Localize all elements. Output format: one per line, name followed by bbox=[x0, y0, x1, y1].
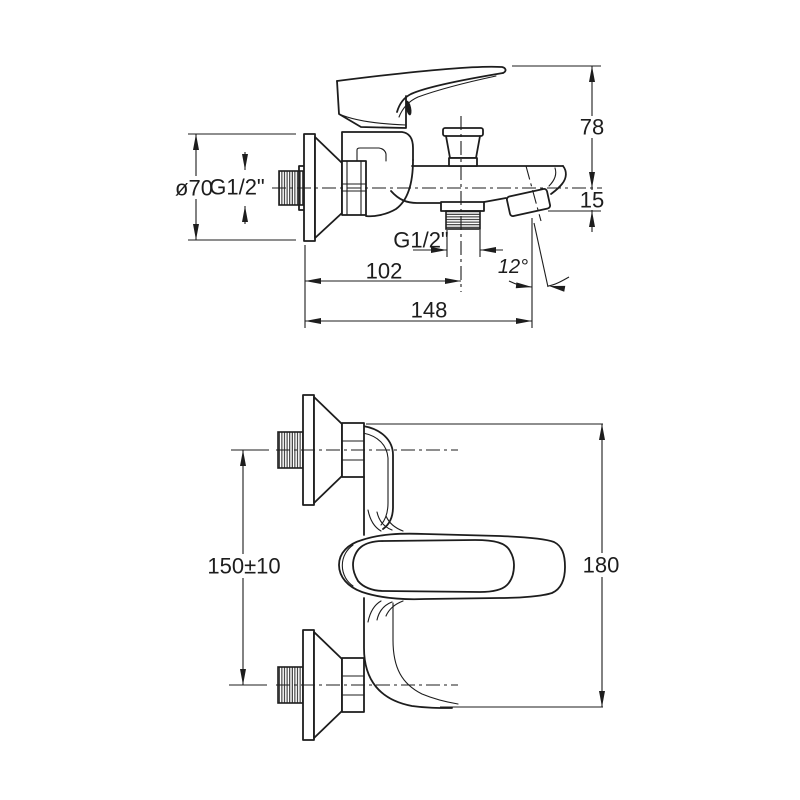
upper-neck-inner bbox=[363, 433, 388, 525]
ext-lines-outlet-thread bbox=[447, 230, 480, 257]
faucet-dimension-drawing: ø70 G1/2" 78 15 G1/2" 102 148 12° bbox=[0, 0, 800, 800]
faucet-body-side bbox=[337, 67, 566, 229]
outlet-collar bbox=[441, 202, 484, 211]
label-flange-diameter: ø70 bbox=[175, 176, 213, 201]
lower-sweep-inner bbox=[393, 603, 458, 704]
arrow-icon bbox=[240, 669, 246, 685]
label-angle-12: 12° bbox=[498, 256, 528, 278]
arrow-icon bbox=[516, 282, 533, 290]
diverter-knob-taper bbox=[446, 136, 480, 158]
handle-base bbox=[337, 81, 406, 128]
spout-aerator bbox=[506, 188, 550, 216]
spout-underside-right bbox=[484, 198, 506, 202]
technical-drawing-page: ø70 G1/2" 78 15 G1/2" 102 148 12° bbox=[0, 0, 800, 800]
arrow-icon bbox=[240, 450, 246, 466]
label-height-78: 78 bbox=[580, 115, 604, 140]
label-102: 102 bbox=[366, 259, 403, 284]
arrow-icon bbox=[516, 318, 532, 324]
valve-cap bbox=[342, 132, 413, 161]
arrow-icon bbox=[193, 134, 199, 150]
spout-tip-inner bbox=[549, 168, 556, 186]
arrow-icon bbox=[305, 278, 321, 284]
label-outlet-thread: G1/2" bbox=[393, 228, 449, 253]
label-inlet-thread: G1/2" bbox=[209, 175, 265, 200]
body-plan bbox=[339, 424, 603, 708]
arrow-icon bbox=[589, 172, 595, 188]
arrow-icon bbox=[589, 66, 595, 82]
arrow-icon bbox=[193, 224, 199, 240]
side-view: ø70 G1/2" 78 15 G1/2" 102 148 12° bbox=[172, 66, 606, 328]
handle-lever-top bbox=[337, 67, 506, 81]
angle-reference-line bbox=[534, 223, 548, 287]
arrow-icon bbox=[548, 283, 565, 292]
lower-sweep-outer bbox=[364, 598, 452, 708]
diverter-knob-base bbox=[449, 158, 477, 166]
arrow-icon bbox=[589, 211, 595, 227]
label-180: 180 bbox=[583, 553, 620, 578]
lower-fillet-webs bbox=[368, 601, 403, 622]
arrow-icon bbox=[305, 318, 321, 324]
arrow-icon bbox=[242, 154, 248, 170]
handle-lever-inner-curve bbox=[399, 76, 496, 117]
label-drop-15: 15 bbox=[580, 188, 604, 213]
handle-lever-underside bbox=[397, 73, 503, 112]
diverter-knob-cap bbox=[443, 128, 483, 136]
spout-underside-left bbox=[391, 191, 441, 203]
shower-outlet-thread bbox=[446, 211, 480, 229]
plan-view: 150±10 180 bbox=[207, 395, 621, 740]
body-ledge bbox=[357, 148, 386, 161]
arrow-icon bbox=[599, 691, 605, 707]
label-150-10: 150±10 bbox=[207, 554, 280, 579]
arrow-icon bbox=[599, 424, 605, 440]
arrow-icon bbox=[480, 247, 496, 253]
angle-arc-right bbox=[548, 277, 569, 286]
arrow-icon bbox=[242, 206, 248, 222]
arrow-icon bbox=[445, 278, 461, 284]
label-148: 148 bbox=[411, 298, 448, 323]
